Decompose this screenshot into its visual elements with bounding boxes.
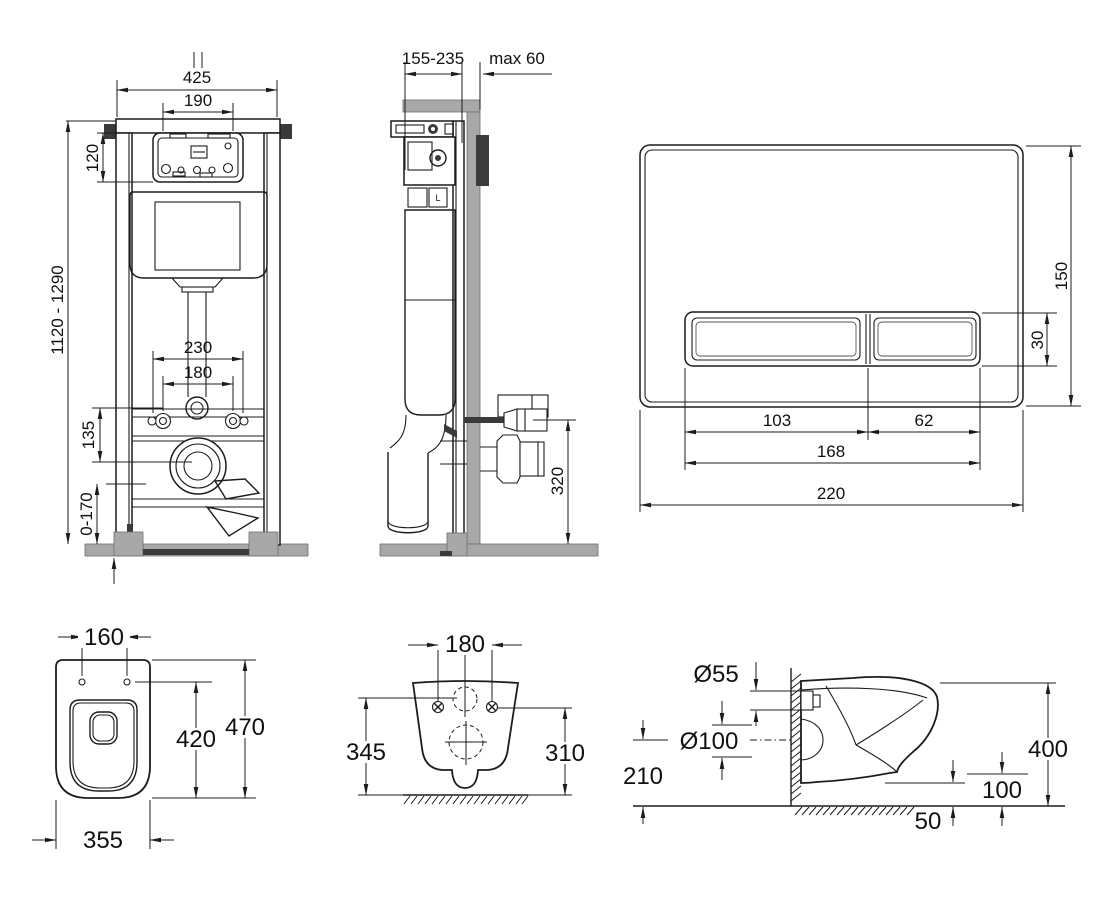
dim-inlet-diameter: Ø55 bbox=[693, 661, 738, 688]
dim-frame-width: 425 bbox=[183, 68, 211, 87]
bowl-side-dimensions: Ø55 Ø100 210 400 100 bbox=[623, 661, 1074, 835]
dim-drain-axis-height: 210 bbox=[623, 763, 663, 790]
mount-hole bbox=[124, 679, 130, 685]
dim-panel-width: 190 bbox=[184, 91, 212, 110]
floor-slab-side bbox=[380, 544, 598, 556]
dim-right-height: 310 bbox=[545, 740, 585, 767]
dim-hole-to-front: 420 bbox=[176, 726, 216, 753]
installation-diagram: 425 190 120 1120 - 1290 230 180 135 bbox=[0, 0, 1120, 909]
dim-bolt-spacing: 180 bbox=[184, 363, 212, 382]
dim-rear-hole-spacing: 180 bbox=[445, 631, 485, 658]
dim-top-hole-spacing: 160 bbox=[84, 624, 124, 651]
dim-button-height: 30 bbox=[1028, 331, 1047, 350]
floor-section bbox=[633, 806, 1065, 815]
dim-bowl-width: 355 bbox=[83, 827, 123, 854]
dim-inlet-offset: 135 bbox=[79, 421, 98, 449]
dim-bowl-depth: 400 bbox=[1028, 736, 1068, 763]
dim-panel-height: 120 bbox=[83, 144, 102, 172]
dim-small-button: 62 bbox=[915, 411, 934, 430]
flush-plate-view: 150 30 103 62 168 220 bbox=[640, 145, 1081, 512]
dim-underside-height: 100 bbox=[982, 777, 1022, 804]
wall-section bbox=[791, 668, 801, 806]
dim-depth-range: 155-235 bbox=[402, 49, 464, 68]
mount-hole bbox=[79, 679, 85, 685]
dim-plate-width: 220 bbox=[817, 484, 845, 503]
dim-bowl-length: 470 bbox=[225, 714, 265, 741]
dim-duct-spacing: 230 bbox=[184, 338, 212, 357]
dim-frame-height: 1120 - 1290 bbox=[48, 265, 67, 354]
dim-wall-max: max 60 bbox=[489, 49, 545, 68]
dim-drain-diameter: Ø100 bbox=[680, 728, 739, 755]
bowl-side-view: Ø55 Ø100 210 400 100 bbox=[623, 661, 1074, 835]
dim-buttons-total: 168 bbox=[817, 442, 845, 461]
technical-drawing-page: 425 190 120 1120 - 1290 230 180 135 bbox=[0, 0, 1120, 909]
flush-plate-housing bbox=[476, 135, 489, 186]
bowl-top-view: 160 420 470 355 bbox=[32, 624, 271, 854]
valve-label: L bbox=[435, 193, 440, 203]
bowl-top-dimensions: 160 420 470 355 bbox=[32, 624, 271, 854]
frame-fixings bbox=[132, 397, 264, 441]
flush-buttons bbox=[685, 312, 980, 366]
drain-outlet bbox=[127, 438, 264, 536]
dim-plate-height: 150 bbox=[1052, 262, 1071, 290]
inlet-spigot bbox=[801, 691, 813, 710]
dim-left-height: 345 bbox=[346, 739, 386, 766]
ground-hatch-rear bbox=[403, 795, 528, 804]
dim-underside-offset: 50 bbox=[915, 808, 942, 835]
bowl-outline-side bbox=[801, 677, 938, 783]
cistern-side: L bbox=[404, 137, 455, 415]
dim-big-button: 103 bbox=[763, 411, 791, 430]
dim-outlet-height: 320 bbox=[548, 467, 567, 495]
frame-side-view: L bbox=[380, 49, 598, 556]
cistern-access-panel bbox=[153, 133, 243, 182]
bowl-rear-view: 180 345 310 bbox=[340, 631, 591, 804]
wall-top bbox=[403, 100, 480, 112]
dim-foot-range: 0-170 bbox=[77, 492, 96, 535]
frame-front-view: 425 190 120 1120 - 1290 230 180 135 bbox=[48, 52, 308, 584]
